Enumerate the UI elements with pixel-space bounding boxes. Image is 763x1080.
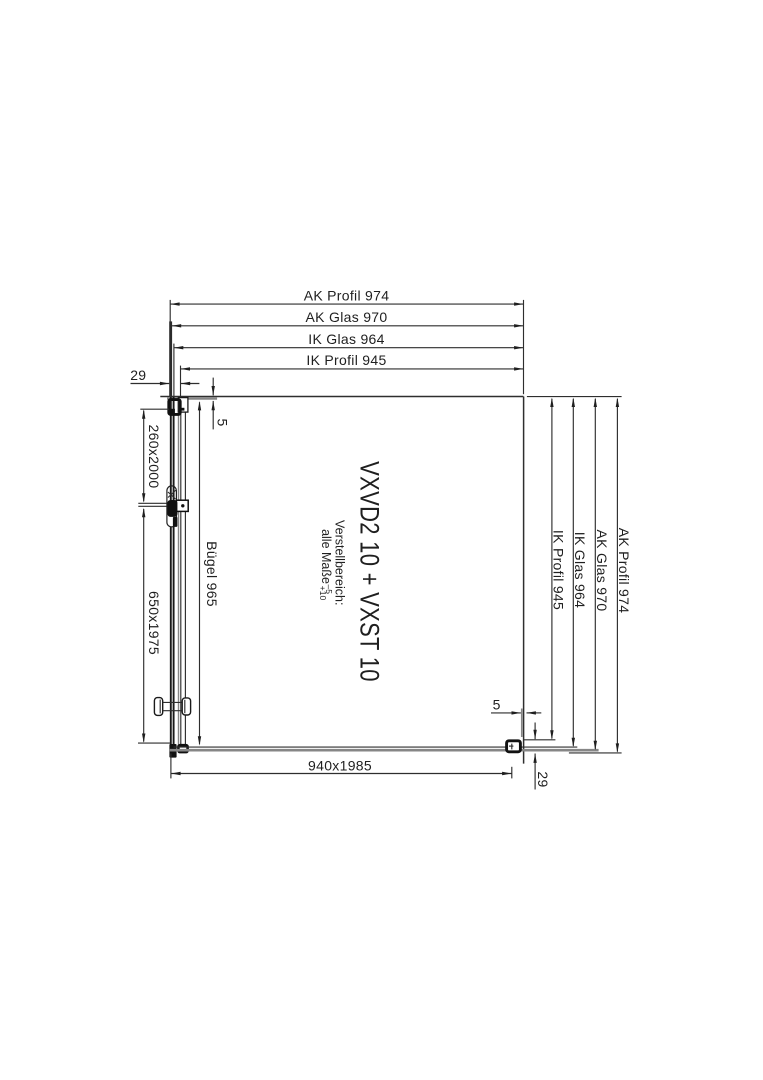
svg-text:29: 29 (130, 367, 146, 383)
svg-text:AK Glas 970: AK Glas 970 (594, 530, 610, 612)
svg-text:AK Profil 974: AK Profil 974 (616, 528, 632, 614)
svg-text:IK Profil 945: IK Profil 945 (550, 530, 566, 610)
svg-text:5: 5 (493, 696, 501, 712)
svg-text:5: 5 (215, 418, 231, 426)
svg-text:IK Profil 945: IK Profil 945 (306, 352, 386, 368)
svg-text:+10: +10 (318, 586, 328, 601)
svg-text:AK Profil 974: AK Profil 974 (304, 287, 390, 303)
svg-text:alle Maße: alle Maße (319, 529, 333, 584)
svg-text:29: 29 (535, 771, 551, 787)
svg-text:650x1975: 650x1975 (146, 591, 162, 655)
svg-text:VXVD2 10 + VXST 10: VXVD2 10 + VXST 10 (354, 461, 384, 682)
svg-text:IK Glas 964: IK Glas 964 (308, 331, 384, 347)
svg-text:260x2000: 260x2000 (146, 425, 162, 489)
svg-text:Bügel 965: Bügel 965 (204, 541, 220, 607)
svg-text:IK Glas 964: IK Glas 964 (572, 532, 588, 608)
svg-text:AK Glas 970: AK Glas 970 (306, 309, 388, 325)
svg-text:940x1985: 940x1985 (308, 758, 372, 774)
